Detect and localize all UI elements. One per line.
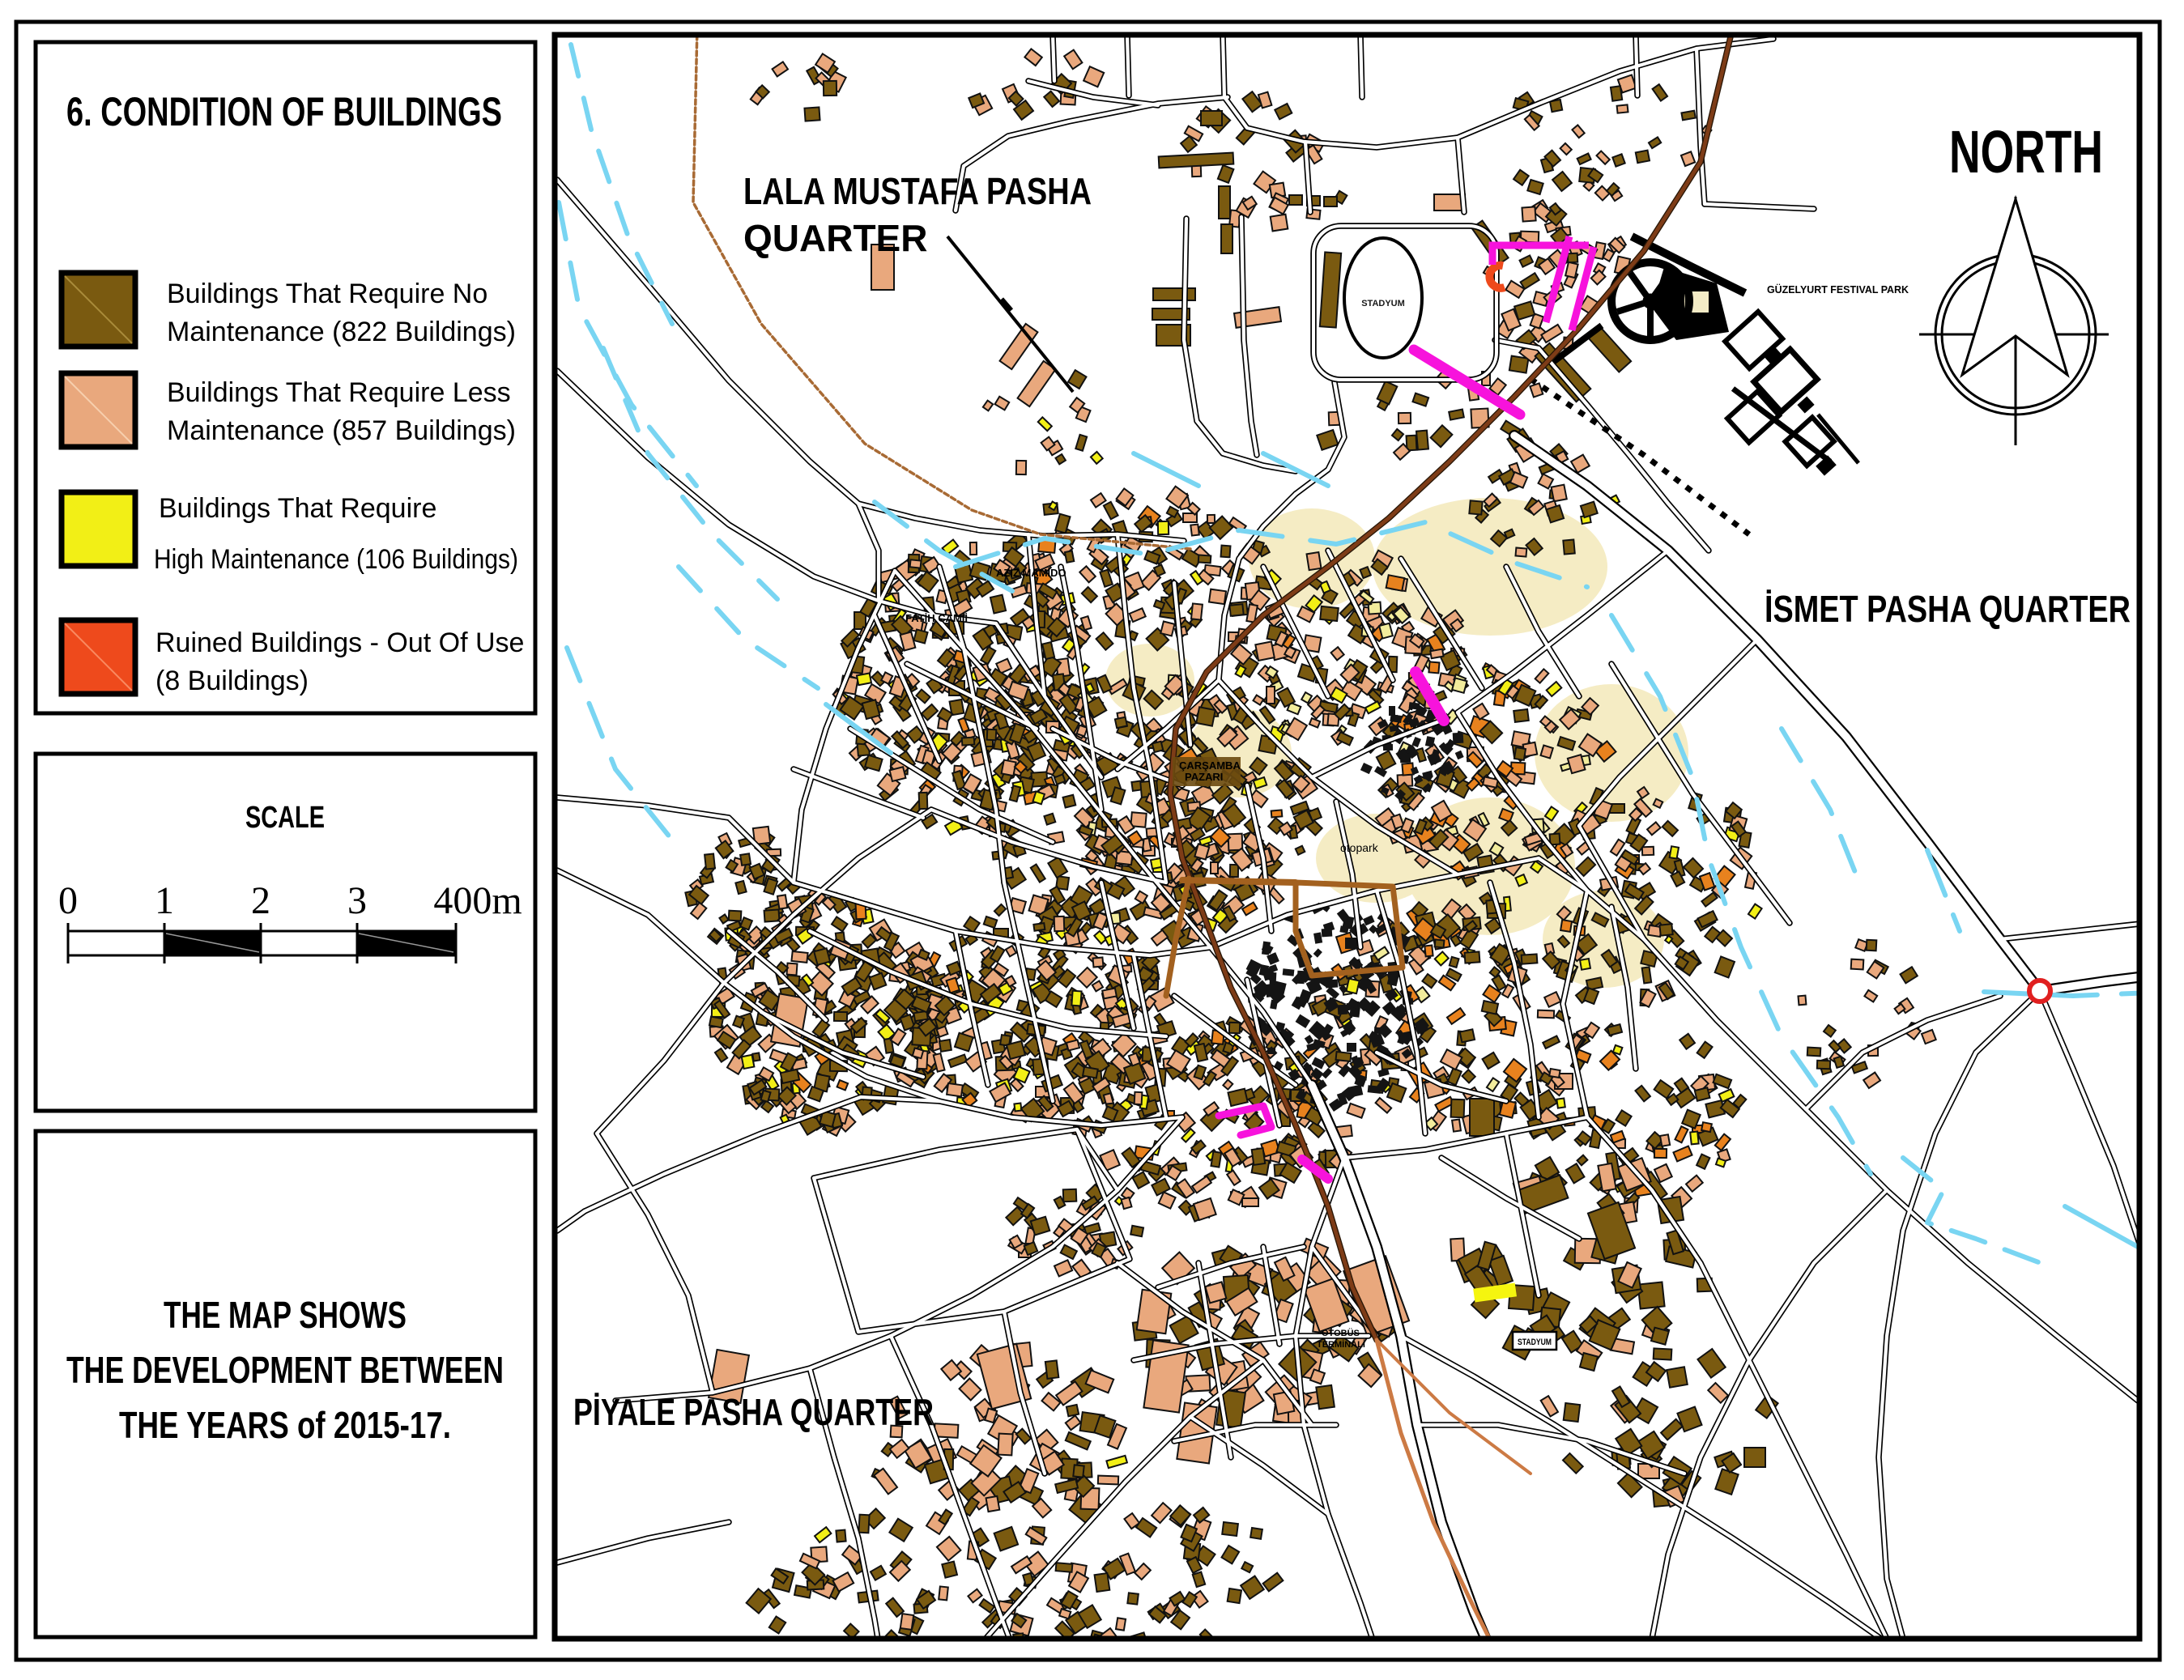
svg-text:Buildings That Require: Buildings That Require: [159, 493, 436, 524]
svg-text:THE MAP SHOWS: THE MAP SHOWS: [164, 1294, 407, 1336]
svg-text:Maintenance (857 Buildings): Maintenance (857 Buildings): [167, 415, 516, 446]
svg-text:0: 0: [58, 879, 78, 922]
svg-text:AZİZ MAMİDO: AZİZ MAMİDO: [996, 567, 1066, 579]
svg-text:THE DEVELOPMENT BETWEEN: THE DEVELOPMENT BETWEEN: [66, 1349, 504, 1391]
svg-text:400m: 400m: [433, 879, 522, 922]
svg-text:STADYUM: STADYUM: [1361, 299, 1405, 308]
svg-text:(8 Buildings): (8 Buildings): [155, 666, 309, 696]
svg-text:THE YEARS of 2015-17.: THE YEARS of 2015-17.: [119, 1404, 451, 1446]
svg-text:LALA MUSTAFA PASHA: LALA MUSTAFA PASHA: [743, 170, 1092, 212]
svg-text:High Maintenance (106 Buildin: High Maintenance (106 Buildings): [154, 544, 518, 575]
svg-text:6. CONDITION OF BUILDINGS: 6. CONDITION OF BUILDINGS: [66, 89, 502, 134]
svg-text:FATİH CAMİİ: FATİH CAMİİ: [905, 612, 968, 624]
svg-text:NORTH: NORTH: [1949, 118, 2103, 185]
svg-text:otopark: otopark: [1340, 841, 1379, 854]
svg-text:3: 3: [347, 879, 367, 922]
svg-text:QUARTER: QUARTER: [743, 217, 927, 259]
svg-text:İSMET PASHA QUARTER: İSMET PASHA QUARTER: [1765, 588, 2131, 630]
svg-text:TERMİNALİ: TERMİNALİ: [1317, 1339, 1365, 1350]
svg-text:OTOBÜS: OTOBÜS: [1322, 1328, 1360, 1338]
svg-text:STADYUM: STADYUM: [1518, 1338, 1552, 1347]
svg-text:Maintenance (822 Buildings): Maintenance (822 Buildings): [167, 317, 516, 347]
svg-text:Buildings That Require No: Buildings That Require No: [167, 279, 487, 309]
svg-text:SCALE: SCALE: [245, 801, 325, 835]
svg-text:1: 1: [155, 879, 174, 922]
svg-text:ÇARŞAMBA: ÇARŞAMBA: [1179, 759, 1241, 772]
svg-text:2: 2: [251, 879, 270, 922]
svg-text:Ruined Buildings - Out Of Use: Ruined Buildings - Out Of Use: [155, 627, 524, 658]
svg-text:Buildings That Require Less: Buildings That Require Less: [167, 377, 511, 408]
svg-text:PİYALE PASHA QUARTER: PİYALE PASHA QUARTER: [573, 1391, 934, 1433]
svg-text:PAZARI: PAZARI: [1185, 771, 1223, 783]
svg-text:GÜZELYURT FESTIVAL PARK: GÜZELYURT FESTIVAL PARK: [1767, 283, 1909, 296]
